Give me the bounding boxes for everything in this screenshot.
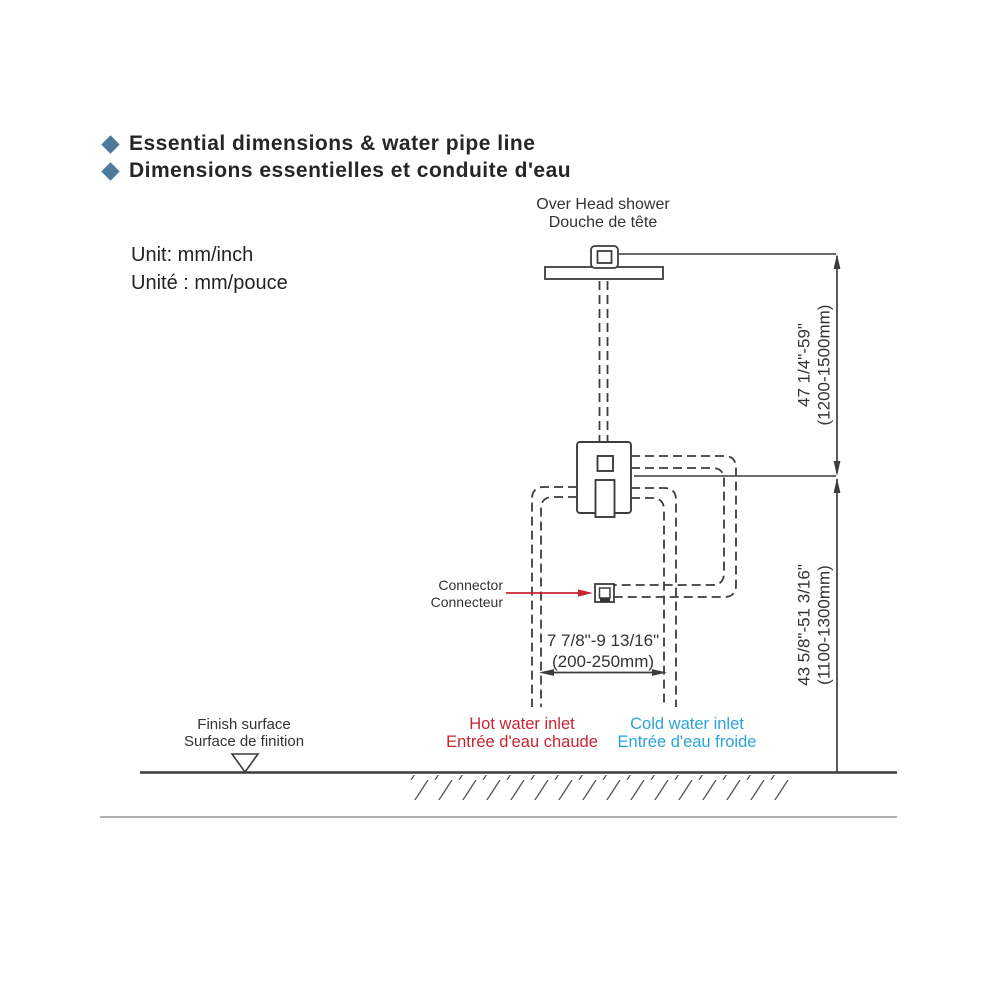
mixer-valve-graphic <box>577 442 631 517</box>
inlet-spacing-inch: 7 7/8"-9 13/16" <box>547 630 659 651</box>
valve-port <box>598 456 614 471</box>
finish-surface-label: Finish surface Surface de finition <box>184 716 304 750</box>
diamond-bullet-icon <box>101 135 119 153</box>
inlet-spacing-dimension: 7 7/8"-9 13/16" (200-250mm) <box>547 630 659 672</box>
unit-line-fr: Unité : mm/pouce <box>131 269 288 297</box>
head-height-mm: (1200-1500mm) <box>814 305 834 426</box>
shower-mount-detail <box>598 251 612 263</box>
cold-pipe-inner <box>631 498 664 707</box>
unit-line-en: Unit: mm/inch <box>131 241 288 269</box>
hot-water-inlet-label: Hot water inlet Entrée d'eau chaude <box>446 715 598 751</box>
unit-note: Unit: mm/inch Unité : mm/pouce <box>131 241 288 297</box>
surface-level-icon <box>232 754 258 772</box>
head-height-dimension: 47 1/4"-59" (1200-1500mm) <box>795 305 834 426</box>
ground-hatching <box>408 775 792 800</box>
page-title-fr: Dimensions essentielles et conduite d'ea… <box>129 159 571 183</box>
cold-water-inlet-label-en: Cold water inlet <box>618 715 757 733</box>
overhead-shower-graphic <box>545 246 663 279</box>
title-row-fr: Dimensions essentielles et conduite d'ea… <box>104 159 571 183</box>
inlet-spacing-mm: (200-250mm) <box>547 651 659 672</box>
connector-cap <box>600 598 610 603</box>
outlet-loop-outer <box>614 456 736 597</box>
cold-water-inlet-label: Cold water inlet Entrée d'eau froide <box>618 715 757 751</box>
connector-graphic <box>595 584 614 603</box>
arrow-right-icon <box>578 589 593 596</box>
hot-pipe-outer <box>532 487 577 707</box>
arrow-down-icon <box>834 461 841 476</box>
connector-detail <box>600 588 611 598</box>
page-title-en: Essential dimensions & water pipe line <box>129 132 535 156</box>
title-row-en: Essential dimensions & water pipe line <box>104 132 535 156</box>
finish-surface-label-en: Finish surface <box>184 716 304 733</box>
connector-label-en: Connector <box>431 577 503 594</box>
dimension-lines <box>542 256 837 772</box>
hot-water-inlet-label-fr: Entrée d'eau chaude <box>446 733 598 751</box>
diamond-bullet-icon <box>101 162 119 180</box>
valve-height-mm: (1100-1300mm) <box>814 564 834 686</box>
finish-surface-label-fr: Surface de finition <box>184 733 304 750</box>
hot-pipe-inner <box>541 497 577 707</box>
overhead-shower-label: Over Head shower Douche de tête <box>536 196 669 232</box>
arrow-up-icon <box>834 478 841 493</box>
hot-water-inlet-label-en: Hot water inlet <box>446 715 598 733</box>
valve-height-inch: 43 5/8"-51 3/16" <box>795 564 815 686</box>
cold-water-inlet-label-fr: Entrée d'eau froide <box>618 733 757 751</box>
valve-handle <box>596 480 615 517</box>
connector-callout <box>506 589 593 596</box>
valve-height-dimension: 43 5/8"-51 3/16" (1100-1300mm) <box>795 564 834 686</box>
connector-label: Connector Connecteur <box>431 577 503 611</box>
diagram-page: Essential dimensions & water pipe line D… <box>0 0 1000 1000</box>
head-height-inch: 47 1/4"-59" <box>795 305 815 426</box>
connector-label-fr: Connecteur <box>431 594 503 611</box>
overhead-shower-label-en: Over Head shower <box>536 196 669 214</box>
overhead-shower-label-fr: Douche de tête <box>536 214 669 232</box>
arrow-up-icon <box>834 254 841 269</box>
